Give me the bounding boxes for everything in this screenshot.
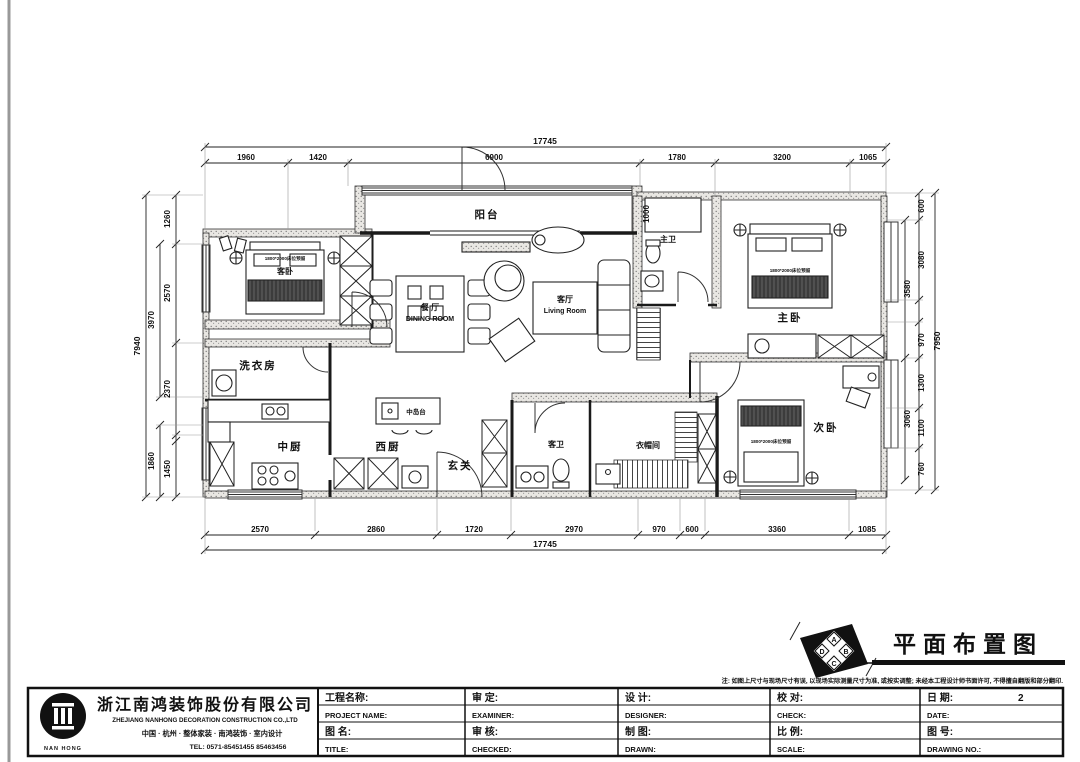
company-block: NAN HONG 浙江南鸿装饰股份有限公司 ZHEJIANG NANHONG D… <box>40 693 313 752</box>
svg-text:1260: 1260 <box>163 210 172 228</box>
company-logo-text: NAN HONG <box>44 746 82 752</box>
svg-text:3080: 3080 <box>917 251 926 269</box>
svg-text:2860: 2860 <box>367 525 385 534</box>
laundry-door <box>303 347 328 372</box>
room-label-guest-bath: 客卫 <box>547 439 564 449</box>
compass-b: B <box>843 649 848 656</box>
field-checked-en: CHECKED: <box>472 745 512 754</box>
field-title-en: TITLE: <box>325 745 348 754</box>
entry-door <box>437 452 482 497</box>
room-label-west-kitchen: 西厨 <box>376 441 401 453</box>
field-check-en: CHECK: <box>777 711 806 720</box>
svg-text:1860: 1860 <box>147 452 156 470</box>
svg-text:3060: 3060 <box>903 410 912 428</box>
field-date-value: 2 <box>1018 693 1024 704</box>
svg-text:1780: 1780 <box>668 153 686 162</box>
svg-text:2970: 2970 <box>565 525 583 534</box>
svg-text:760: 760 <box>917 462 926 476</box>
field-title-cn: 图 名: <box>325 725 351 738</box>
svg-text:7950: 7950 <box>932 331 942 350</box>
svg-text:1100: 1100 <box>917 419 926 437</box>
svg-text:600: 600 <box>685 525 699 534</box>
field-drawn-en: DRAWN: <box>625 745 656 754</box>
room-label-foyer: 玄关 <box>448 459 473 472</box>
field-drawing-no-en: DRAWING NO.: <box>927 745 981 754</box>
svg-text:17745: 17745 <box>533 539 557 549</box>
bed-note-guest: 1800*2000床位预留 <box>265 255 306 262</box>
room-label-laundry: 洗衣房 <box>239 359 277 372</box>
wardrobe-stripe <box>614 460 688 488</box>
svg-text:2570: 2570 <box>163 284 172 302</box>
svg-text:7940: 7940 <box>132 336 142 355</box>
field-date-cn: 日 期: <box>927 691 953 704</box>
field-drawing-no-cn: 图 号: <box>927 726 953 738</box>
field-project-name-cn: 工程名称: <box>325 691 368 704</box>
company-name: 浙江南鸿装饰股份有限公司 <box>97 695 313 714</box>
svg-text:1300: 1300 <box>917 374 926 392</box>
room-label-second-bedroom: 次卧 <box>814 421 839 434</box>
compass-c: C <box>831 661 836 668</box>
drawing-title: 平面布置图 <box>893 631 1043 657</box>
svg-text:3580: 3580 <box>903 280 912 298</box>
svg-text:2370: 2370 <box>163 380 172 398</box>
svg-text:2570: 2570 <box>251 525 269 534</box>
field-designer-cn: 设 计: <box>625 691 651 704</box>
field-scale-en: SCALE: <box>777 745 805 754</box>
svg-text:6900: 6900 <box>485 153 503 162</box>
svg-text:3970: 3970 <box>147 311 156 329</box>
drawing-sheet: 阳台 客卧 1800*2000床位预留 餐 厅 DINING ROOM 客厅 L… <box>0 0 1080 762</box>
room-label-closet: 衣帽间 <box>636 440 660 450</box>
field-check-cn: 校 对: <box>777 691 803 704</box>
title-block: NAN HONG 浙江南鸿装饰股份有限公司 ZHEJIANG NANHONG D… <box>28 688 1063 756</box>
room-label-living-en: Living Room <box>544 308 586 315</box>
company-tel: TEL: 0571-85451455 85463456 <box>190 744 287 751</box>
field-date-en: DATE: <box>927 711 949 720</box>
bed-note-second: 1800*2000床位预留 <box>751 438 792 445</box>
compass-a: A <box>831 637 836 644</box>
svg-text:970: 970 <box>917 333 926 347</box>
svg-text:600: 600 <box>917 199 926 213</box>
room-label-dining-en: DINING ROOM <box>406 316 454 323</box>
svg-text:1085: 1085 <box>858 525 876 534</box>
svg-text:1450: 1450 <box>163 460 172 478</box>
svg-text:1065: 1065 <box>859 153 877 162</box>
bed-note-master: 1800*2000床位预留 <box>770 267 811 274</box>
svg-text:970: 970 <box>652 525 666 534</box>
bath-dim-1000: 1000 <box>642 205 651 223</box>
room-label-living: 客厅 <box>556 294 573 304</box>
master-bath-door <box>678 272 708 302</box>
compass: A B C D <box>790 622 876 678</box>
field-examiner-en: EXAMINER: <box>472 711 514 720</box>
svg-text:1960: 1960 <box>237 153 255 162</box>
field-examiner-cn: 审 定: <box>472 691 498 704</box>
svg-text:3360: 3360 <box>768 525 786 534</box>
room-label-master-bedroom: 主卧 <box>778 311 803 324</box>
island-label: 中岛台 <box>406 407 426 416</box>
svg-text:3200: 3200 <box>773 153 791 162</box>
field-checked-cn: 审 核: <box>472 725 498 738</box>
floor-plan-svg: 阳台 客卧 1800*2000床位预留 餐 厅 DINING ROOM 客厅 L… <box>0 0 1080 762</box>
field-designer-en: DESIGNER: <box>625 711 667 720</box>
svg-text:17745: 17745 <box>533 136 557 146</box>
drawing-note: 注: 如图上尺寸与现场尺寸有误, 以现场实际测量尺寸为准, 或按实调整; 未经本… <box>722 677 1064 685</box>
room-label-dining: 餐 厅 <box>420 302 439 312</box>
compass-d: D <box>819 649 824 656</box>
svg-text:1420: 1420 <box>309 153 327 162</box>
guest-bath-door <box>535 403 565 433</box>
title-underline <box>872 660 1065 665</box>
room-label-master-bath: 主卫 <box>660 234 676 244</box>
svg-text:1720: 1720 <box>465 525 483 534</box>
room-label-chinese-kitchen: 中厨 <box>278 440 303 453</box>
company-tagline: 中国 · 杭州 · 整体家装 · 南鸿装饰 · 室内设计 <box>142 729 283 738</box>
room-label-balcony: 阳台 <box>475 208 500 221</box>
company-name-en: ZHEJIANG NANHONG DECORATION CONSTRUCTION… <box>112 717 298 724</box>
field-project-name-en: PROJECT NAME: <box>325 711 387 720</box>
room-label-guest-bedroom: 客卧 <box>276 266 293 276</box>
field-scale-cn: 比 例: <box>777 725 803 738</box>
field-drawn-cn: 制 图: <box>625 725 651 738</box>
